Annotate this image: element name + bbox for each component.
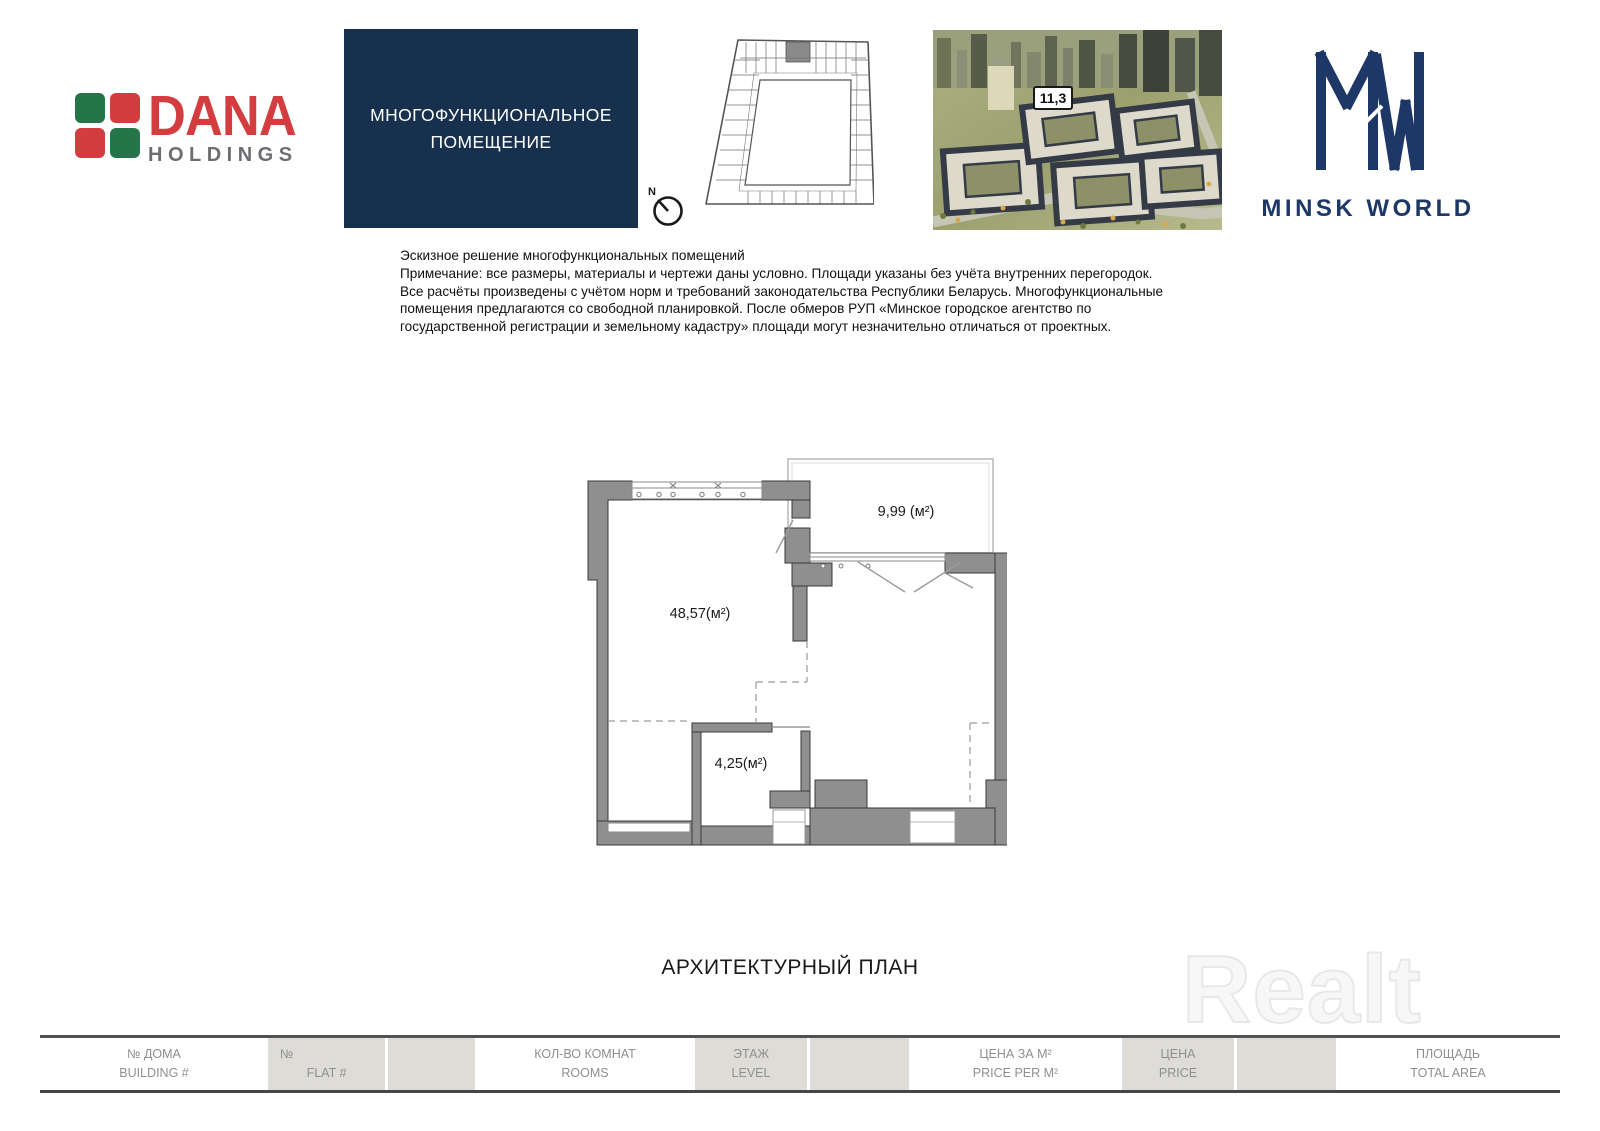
spec-rooms-label: КОЛ-ВО КОМНАТ ROOMS xyxy=(475,1038,695,1090)
block-number: 11,3 xyxy=(1040,90,1067,106)
plan-title: АРХИТЕКТУРНЫЙ ПЛАН xyxy=(573,956,1007,980)
disclaimer-line: Эскизное решение многофункциональных пом… xyxy=(400,247,1190,265)
building-en: BUILDING # xyxy=(40,1064,268,1083)
spec-empty-cell xyxy=(388,1038,475,1090)
price-per-m2-ru: ЦЕНА ЗА М² xyxy=(909,1045,1122,1064)
spec-bar: № ДОМА BUILDING # № FLAT # КОЛ-ВО КОМНАТ… xyxy=(40,1035,1560,1093)
realt-watermark: Realt xyxy=(1182,942,1422,1038)
dana-holdings-logo: DANA HOLDINGS xyxy=(75,93,309,167)
rooms-ru: КОЛ-ВО КОМНАТ xyxy=(475,1045,695,1064)
square-green-icon xyxy=(110,128,140,158)
dana-wordmark: DANA HOLDINGS xyxy=(148,93,309,167)
price-per-m2-en: PRICE PER M² xyxy=(909,1064,1122,1083)
minsk-world-name: MINSK WORLD xyxy=(1250,195,1486,223)
price-en: PRICE xyxy=(1122,1064,1234,1083)
mw-monogram-icon xyxy=(1306,42,1430,182)
dana-name: DANA xyxy=(148,93,296,140)
price-ru: ЦЕНА xyxy=(1122,1045,1234,1064)
block-number-badge: 11,3 xyxy=(1034,87,1072,109)
north-compass-icon: N xyxy=(640,180,694,232)
spec-total-area-label: ПЛОЩАДЬ TOTAL AREA xyxy=(1336,1038,1560,1090)
room-area-storage: 4,25(м²) xyxy=(715,756,768,772)
spec-price-per-m2-label: ЦЕНА ЗА М² PRICE PER M² xyxy=(909,1038,1122,1090)
room-area-terrace: 9,99 (м²) xyxy=(878,504,935,520)
flat-ru: № xyxy=(268,1045,385,1064)
highlighted-unit xyxy=(786,42,810,62)
disclaimer-line: Примечание: все размеры, материалы и чер… xyxy=(400,265,1190,283)
disclaimer-line: государственной регистрации и земельному… xyxy=(400,318,1190,336)
square-red-icon xyxy=(75,128,105,158)
square-green-icon xyxy=(75,93,105,123)
spec-empty-cell xyxy=(1237,1038,1336,1090)
square-red-icon xyxy=(110,93,140,123)
unit-type-line1: МНОГОФУНКЦИОНАЛЬНОЕ xyxy=(370,102,612,128)
unit-type-banner: МНОГОФУНКЦИОНАЛЬНОЕ ПОМЕЩЕНИЕ xyxy=(344,29,638,228)
disclaimer-text: Эскизное решение многофункциональных пом… xyxy=(400,247,1190,336)
spec-empty-cell xyxy=(810,1038,909,1090)
spec-building-label: № ДОМА BUILDING # xyxy=(40,1038,268,1090)
building-ru: № ДОМА xyxy=(40,1045,268,1064)
disclaimer-line: помещения предлагаются со свободной план… xyxy=(400,300,1190,318)
aerial-render: 11,3 xyxy=(933,30,1222,230)
spec-flat-value: № FLAT # xyxy=(268,1038,385,1090)
room-area-main: 48,57(м²) xyxy=(670,606,731,622)
floor-plan: 48,57(м²) 9,99 (м²) 4,25(м²) xyxy=(573,450,1007,850)
dana-squares-icon xyxy=(75,93,140,158)
compass-n-label: N xyxy=(648,186,656,198)
spec-level-value: ЭТАЖ LEVEL xyxy=(695,1038,807,1090)
total-area-ru: ПЛОЩАДЬ xyxy=(1336,1045,1560,1064)
flat-en: FLAT # xyxy=(268,1064,385,1083)
unit-type-line2: ПОМЕЩЕНИЕ xyxy=(430,129,551,155)
disclaimer-line: Все расчёты произведены с учётом норм и … xyxy=(400,283,1190,301)
spec-price-value: ЦЕНА PRICE xyxy=(1122,1038,1234,1090)
rooms-en: ROOMS xyxy=(475,1064,695,1083)
brochure-page: DANA HOLDINGS МНОГОФУНКЦИОНАЛЬНОЕ ПОМЕЩЕ… xyxy=(0,0,1600,1131)
total-area-en: TOTAL AREA xyxy=(1336,1064,1560,1083)
building-floor-overview xyxy=(698,30,874,218)
minsk-world-logo: MINSK WORLD xyxy=(1250,42,1486,223)
level-ru: ЭТАЖ xyxy=(695,1045,807,1064)
level-en: LEVEL xyxy=(695,1064,807,1083)
